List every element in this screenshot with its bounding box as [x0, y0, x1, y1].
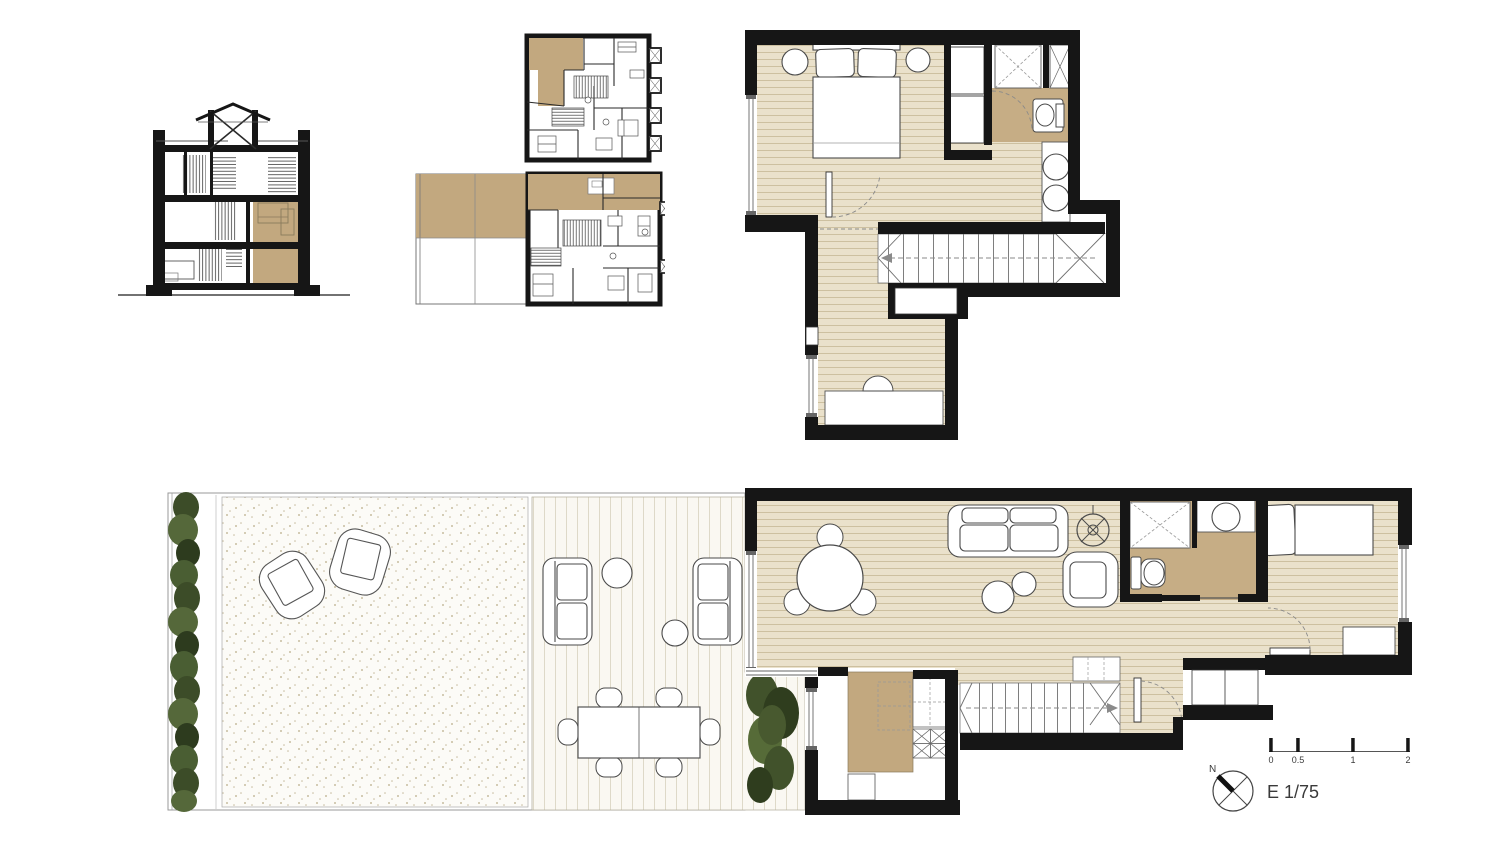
key-plan-upper	[518, 30, 670, 175]
double-washbasin	[1042, 142, 1070, 222]
coffee-table	[1012, 572, 1036, 596]
living-room-low-window	[745, 668, 818, 677]
toilet	[1131, 557, 1165, 589]
armchair	[1063, 552, 1118, 607]
shower	[1130, 502, 1190, 548]
key-plan-lower	[413, 168, 665, 319]
stair-cabinet	[1073, 657, 1120, 681]
nightstand-left	[782, 49, 808, 75]
kitchen-counter	[848, 672, 913, 772]
north-label: N	[1209, 764, 1216, 775]
legend-drawing: 0 0.5 1 2 N E 1/75	[1205, 732, 1420, 822]
scale-label: E 1/75	[1267, 782, 1319, 802]
scale-bar: 0 0.5 1 2	[1268, 738, 1410, 765]
building-section	[118, 95, 350, 322]
side-table	[662, 620, 688, 646]
wardrobe	[946, 47, 984, 143]
upper-floor-plan	[738, 25, 1130, 452]
section-highlight-room-low	[253, 245, 298, 283]
legend: 0 0.5 1 2 N E 1/75	[1205, 732, 1420, 827]
single-bed	[1262, 504, 1373, 556]
coffee-table	[982, 581, 1014, 613]
bedroom-niche	[1343, 627, 1395, 655]
key-plan-upper-drawing	[518, 30, 670, 170]
upper-floor-plan-drawing	[738, 25, 1130, 447]
wall-niche	[806, 327, 818, 345]
fridge-cabinet	[913, 677, 948, 727]
round-dining-table	[797, 545, 863, 611]
section-roof-lantern	[196, 104, 270, 150]
nightstand-right	[906, 48, 930, 72]
garden-terrace	[168, 493, 805, 810]
outdoor-sofa-left	[543, 558, 592, 645]
building-section-drawing	[118, 95, 350, 317]
under-stair-closet	[895, 288, 957, 314]
shower-large	[995, 45, 1041, 88]
kitchen-window	[805, 688, 818, 750]
section-highlight-room-mid	[253, 198, 298, 242]
bedroom-window	[745, 95, 757, 215]
scale-tick-label: 0.5	[1292, 755, 1305, 765]
north-compass-icon: N	[1209, 764, 1253, 811]
sofa	[948, 505, 1068, 557]
living-room-glazing	[745, 551, 757, 671]
pantry-grid	[913, 729, 948, 758]
shower-small	[1050, 45, 1070, 88]
side-table	[602, 558, 632, 588]
scale-tick-label: 0	[1268, 755, 1273, 765]
kitchen-sink	[848, 774, 875, 800]
key-plan-lower-drawing	[413, 168, 665, 314]
washbasin	[1197, 500, 1255, 532]
scale-tick-label: 1	[1350, 755, 1355, 765]
scale-tick-label: 2	[1405, 755, 1410, 765]
key-plan-lower-building	[528, 174, 665, 304]
wc-toilet	[1033, 99, 1064, 132]
stair-up	[960, 683, 1120, 733]
section-rooms	[160, 152, 299, 283]
kitchen	[818, 672, 948, 800]
key-plan-lower-terrace	[416, 174, 528, 304]
corridor-window	[805, 355, 818, 417]
bedroom-window	[1398, 545, 1410, 622]
outdoor-sofa-right	[693, 558, 742, 645]
